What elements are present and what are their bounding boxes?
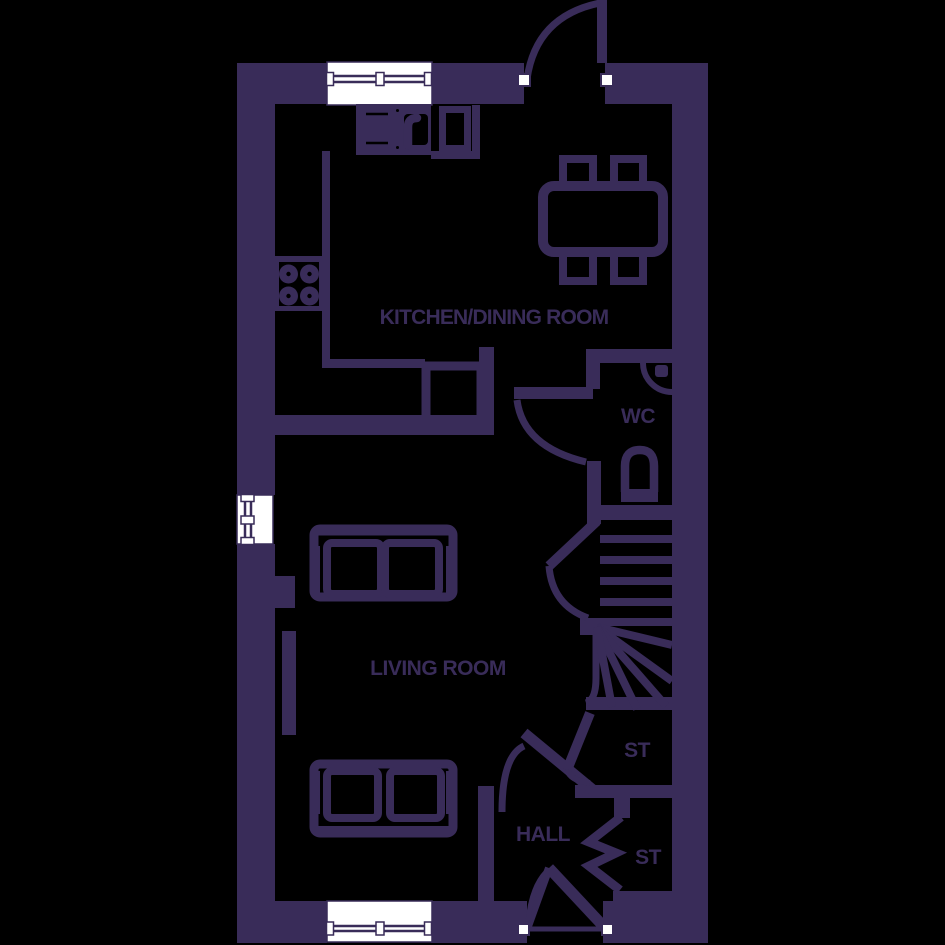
svg-text:KITCHEN/DINING ROOM: KITCHEN/DINING ROOM: [380, 306, 609, 329]
svg-text:HALL: HALL: [516, 823, 571, 846]
svg-text:WC: WC: [621, 405, 655, 428]
svg-text:ST: ST: [624, 739, 651, 762]
svg-text:LIVING ROOM: LIVING ROOM: [370, 657, 506, 680]
svg-text:ST: ST: [635, 846, 662, 869]
